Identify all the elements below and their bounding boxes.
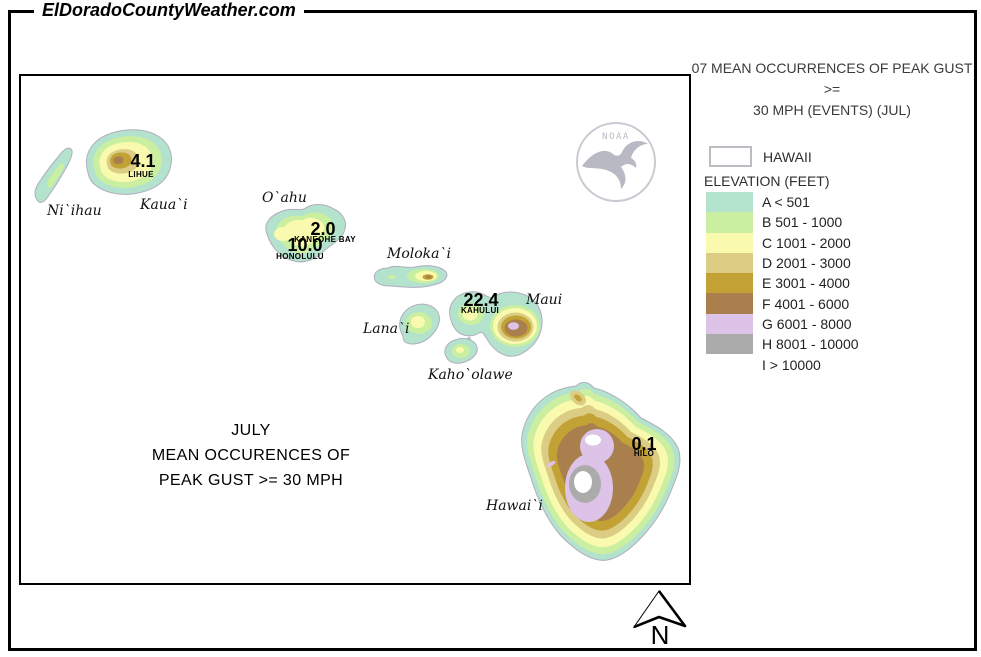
legend-row: I > 10000 bbox=[706, 354, 859, 374]
station-name-kahului: KAHULUI bbox=[461, 307, 499, 315]
legend-swatch-d bbox=[706, 253, 753, 273]
region-legend-row: HAWAII bbox=[709, 146, 812, 167]
legend-label-h: H 8001 - 10000 bbox=[762, 336, 859, 352]
legend-label-d: D 2001 - 3000 bbox=[762, 255, 851, 271]
legend-label-a: A < 501 bbox=[762, 194, 810, 210]
site-header: ElDoradoCountyWeather.com bbox=[34, 0, 304, 21]
island-label-oahu: O`ahu bbox=[262, 191, 307, 205]
legend-swatch-i bbox=[706, 354, 753, 374]
island-label-kauai: Kaua`i bbox=[140, 198, 188, 212]
region-label: HAWAII bbox=[763, 149, 812, 165]
region-swatch bbox=[709, 146, 752, 167]
map-box: NOAA Ni`ihau Kaua`i O`ahu Moloka`i Lana`… bbox=[19, 74, 691, 585]
legend-row: H 8001 - 10000 bbox=[706, 334, 859, 354]
legend-row: C 1001 - 2000 bbox=[706, 233, 859, 253]
legend-swatch-e bbox=[706, 273, 753, 293]
legend-label-c: C 1001 - 2000 bbox=[762, 235, 851, 251]
panel-title-line1: 07 MEAN OCCURRENCES OF PEAK GUST >= bbox=[684, 58, 980, 100]
legend-row: E 3001 - 4000 bbox=[706, 273, 859, 293]
island-label-lanai: Lana`i bbox=[363, 322, 409, 336]
legend-label-f: F 4001 - 6000 bbox=[762, 296, 849, 312]
island-kahoolawe-shape bbox=[445, 338, 477, 363]
legend-swatch-c bbox=[706, 233, 753, 253]
island-niihau-shape bbox=[35, 148, 72, 202]
legend-row: B 501 - 1000 bbox=[706, 212, 859, 232]
legend-row: F 4001 - 6000 bbox=[706, 293, 859, 313]
legend-swatch-b bbox=[706, 212, 753, 232]
legend-swatch-a bbox=[706, 192, 753, 212]
legend-swatch-f bbox=[706, 293, 753, 313]
north-arrow-label: N bbox=[651, 622, 670, 648]
noaa-bird-icon bbox=[578, 134, 654, 194]
station-value-lihue: 4.1 bbox=[130, 152, 155, 170]
panel-title-line2: 30 MPH (EVENTS) (JUL) bbox=[684, 100, 980, 121]
map-title-line3: PEAK GUST >= 30 MPH bbox=[91, 468, 411, 493]
island-label-niihau: Ni`ihau bbox=[47, 204, 102, 218]
legend-row: D 2001 - 3000 bbox=[706, 253, 859, 273]
station-name-lihue: LIHUE bbox=[128, 171, 154, 179]
noaa-logo: NOAA bbox=[576, 122, 656, 202]
island-label-kahoolawe: Kaho`olawe bbox=[428, 368, 513, 382]
legend-label-b: B 501 - 1000 bbox=[762, 214, 842, 230]
island-label-hawaii: Hawai`i bbox=[486, 499, 543, 513]
island-kauai-shape bbox=[86, 130, 171, 195]
panel-title: 07 MEAN OCCURRENCES OF PEAK GUST >= 30 M… bbox=[684, 58, 980, 121]
station-name-honolulu: HONOLULU bbox=[276, 253, 324, 261]
map-title: JULY MEAN OCCURENCES OF PEAK GUST >= 30 … bbox=[91, 418, 411, 493]
island-label-maui: Maui bbox=[526, 293, 562, 307]
legend-label-g: G 6001 - 8000 bbox=[762, 316, 852, 332]
legend-title: ELEVATION (FEET) bbox=[704, 173, 830, 189]
legend-row: G 6001 - 8000 bbox=[706, 314, 859, 334]
map-title-line1: JULY bbox=[91, 418, 411, 443]
station-name-hilo: HILO bbox=[634, 450, 654, 458]
legend-row: A < 501 bbox=[706, 192, 859, 212]
legend-swatch-h bbox=[706, 334, 753, 354]
north-arrow: N bbox=[626, 586, 696, 656]
island-hawaii-shape bbox=[522, 382, 680, 560]
elevation-legend: A < 501 B 501 - 1000 C 1001 - 2000 D 200… bbox=[706, 192, 859, 375]
island-label-molokai: Moloka`i bbox=[387, 247, 451, 261]
island-molokai-shape bbox=[374, 266, 447, 288]
map-title-line2: MEAN OCCURENCES OF bbox=[91, 443, 411, 468]
legend-swatch-g bbox=[706, 314, 753, 334]
legend-label-i: I > 10000 bbox=[762, 357, 821, 373]
legend-label-e: E 3001 - 4000 bbox=[762, 275, 850, 291]
